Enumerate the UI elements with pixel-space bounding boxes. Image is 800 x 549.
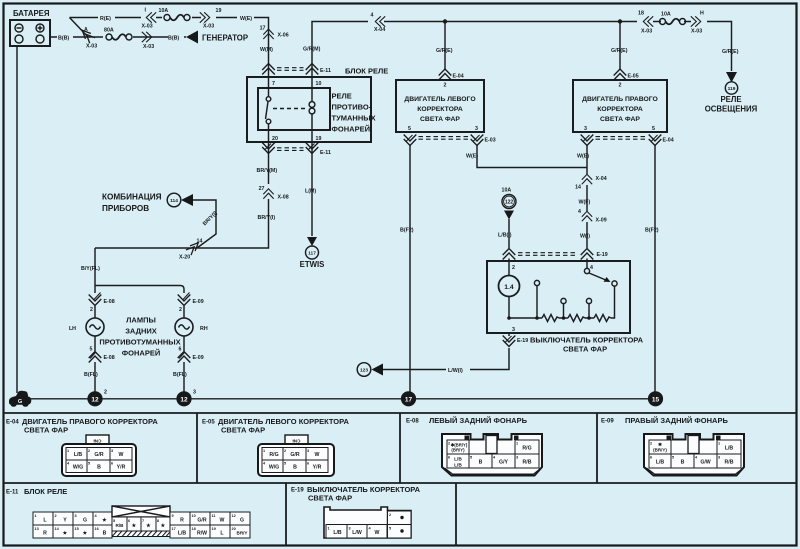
- svg-text:W: W: [375, 530, 380, 536]
- svg-text:B: B: [97, 465, 101, 471]
- svg-text:2: 2: [179, 307, 182, 313]
- svg-text:E-19: E-19: [291, 488, 304, 494]
- svg-text:BR/Y(M): BR/Y(M): [257, 168, 278, 174]
- svg-text:3: 3: [75, 514, 77, 518]
- svg-text:LH: LH: [69, 326, 76, 332]
- svg-text:B: B: [479, 460, 483, 466]
- svg-text:X-08: X-08: [278, 195, 289, 201]
- svg-text:ETWIS: ETWIS: [300, 260, 325, 269]
- svg-text:E-09: E-09: [193, 355, 204, 361]
- svg-text:ЛЕВЫЙ ЗАДНИЙ ФОНАРЬ: ЛЕВЫЙ ЗАДНИЙ ФОНАРЬ: [429, 416, 528, 425]
- svg-text:R/B: R/B: [116, 523, 125, 528]
- svg-text:L(M): L(M): [305, 189, 316, 195]
- svg-text:6: 6: [448, 456, 450, 460]
- svg-text:A: A: [84, 27, 88, 33]
- svg-text:1.4: 1.4: [504, 284, 514, 291]
- svg-text:КОРРЕКТОРА: КОРРЕКТОРА: [417, 106, 463, 113]
- svg-text:W(E): W(E): [466, 154, 478, 160]
- svg-text:3: 3: [193, 390, 196, 396]
- svg-text:15: 15: [652, 396, 660, 403]
- svg-text:БАТАРЕЯ: БАТАРЕЯ: [13, 9, 50, 18]
- svg-text:2: 2: [512, 265, 515, 271]
- svg-text:B: B: [293, 465, 297, 471]
- svg-text:6: 6: [307, 462, 309, 466]
- svg-text:G: G: [18, 399, 22, 405]
- svg-text:5: 5: [389, 527, 391, 531]
- svg-text:2: 2: [88, 449, 90, 453]
- svg-text:ПРОТИВО-: ПРОТИВО-: [332, 103, 372, 112]
- svg-text:L/B: L/B: [178, 531, 187, 537]
- svg-text:G: G: [83, 518, 87, 524]
- svg-text:★: ★: [132, 523, 137, 529]
- svg-text:20: 20: [272, 136, 278, 142]
- svg-text:X-03: X-03: [86, 44, 97, 50]
- svg-text:R/B: R/B: [523, 460, 532, 466]
- svg-text:КОМБИНАЦИЯ: КОМБИНАЦИЯ: [102, 193, 162, 202]
- svg-text:RH: RH: [200, 326, 208, 332]
- svg-text:ƗNƆ: ƗNƆ: [94, 439, 103, 444]
- svg-text:4: 4: [371, 13, 374, 19]
- svg-text:19: 19: [212, 527, 216, 531]
- svg-text:(BR/Y): (BR/Y): [451, 448, 465, 453]
- svg-text:15: 15: [75, 527, 79, 531]
- svg-text:СВЕТА ФАР: СВЕТА ФАР: [563, 345, 607, 354]
- svg-text:W(E): W(E): [240, 16, 252, 22]
- svg-text:12: 12: [91, 396, 99, 403]
- svg-text:L/W(I): L/W(I): [448, 368, 463, 374]
- svg-text:2: 2: [448, 442, 450, 446]
- svg-text:ПРИБОРОВ: ПРИБОРОВ: [102, 204, 149, 213]
- svg-text:5: 5: [90, 347, 93, 353]
- svg-text:Y/R: Y/R: [313, 465, 322, 471]
- svg-text:X-03: X-03: [691, 29, 702, 35]
- svg-text:E-19: E-19: [517, 338, 528, 344]
- svg-text:(BR/Y): (BR/Y): [653, 448, 667, 453]
- svg-text:B(F2): B(F2): [645, 228, 659, 234]
- svg-text:3: 3: [516, 456, 518, 460]
- svg-text:H: H: [700, 11, 704, 17]
- svg-text:BR/Y(I): BR/Y(I): [258, 215, 276, 221]
- svg-text:ФОНАРЕЙ: ФОНАРЕЙ: [122, 349, 160, 358]
- svg-text:G/R: G/R: [290, 452, 299, 458]
- svg-text:4: 4: [590, 265, 593, 271]
- svg-text:10: 10: [192, 514, 196, 518]
- svg-text:16: 16: [95, 527, 99, 531]
- svg-text:14: 14: [575, 185, 581, 191]
- svg-text:E-09: E-09: [193, 299, 204, 305]
- svg-text:G/R(E): G/R(E): [436, 48, 453, 54]
- svg-text:122: 122: [505, 200, 514, 206]
- svg-text:X-03: X-03: [143, 44, 154, 50]
- svg-text:3: 3: [307, 449, 309, 453]
- svg-text:ДВИГАТЕЛЬ ЛЕВОГО: ДВИГАТЕЛЬ ЛЕВОГО: [404, 96, 475, 103]
- svg-text:L/B: L/B: [656, 460, 665, 466]
- svg-text:ФОНАРЕЙ: ФОНАРЕЙ: [332, 125, 370, 134]
- svg-text:СВЕТА ФАР: СВЕТА ФАР: [221, 426, 265, 435]
- svg-text:5: 5: [88, 462, 90, 466]
- svg-text:2: 2: [284, 449, 286, 453]
- svg-text:3: 3: [584, 126, 587, 132]
- svg-text:18: 18: [638, 11, 644, 17]
- svg-text:1: 1: [718, 442, 720, 446]
- svg-text:G/W: G/W: [700, 460, 710, 466]
- svg-text:G/R(E): G/R(E): [611, 48, 628, 54]
- svg-text:B(B): B(B): [168, 36, 179, 42]
- svg-text:19: 19: [316, 136, 322, 142]
- svg-text:R/G: R/G: [269, 452, 278, 458]
- svg-text:114: 114: [170, 198, 178, 204]
- svg-text:1: 1: [35, 514, 37, 518]
- svg-text:ПРАВЫЙ ЗАДНИЙ ФОНАРЬ: ПРАВЫЙ ЗАДНИЙ ФОНАРЬ: [625, 416, 728, 425]
- svg-text:X-09: X-09: [596, 218, 607, 224]
- svg-text:17: 17: [172, 527, 176, 531]
- svg-text:ЗАДНИХ: ЗАДНИХ: [125, 327, 157, 336]
- svg-text:1: 1: [263, 449, 265, 453]
- svg-text:80A: 80A: [104, 28, 114, 34]
- svg-text:L/B: L/B: [74, 452, 83, 458]
- svg-text:X-04: X-04: [596, 176, 607, 182]
- svg-text:Y/R: Y/R: [117, 465, 126, 471]
- svg-text:BR/Y: BR/Y: [237, 531, 248, 536]
- svg-text:L/B: L/B: [454, 457, 462, 463]
- svg-text:B(F2): B(F2): [400, 228, 414, 234]
- svg-text:E-05: E-05: [202, 420, 215, 426]
- svg-text:L/B(I): L/B(I): [498, 233, 512, 239]
- svg-text:B(FL): B(FL): [84, 372, 98, 378]
- svg-text:9: 9: [172, 514, 174, 518]
- svg-text:E-04: E-04: [663, 138, 674, 144]
- svg-text:R: R: [43, 531, 47, 537]
- svg-text:W/G: W/G: [269, 465, 279, 471]
- svg-text:14: 14: [197, 239, 203, 245]
- svg-text:РЕЛЕ: РЕЛЕ: [720, 95, 741, 104]
- svg-text:ВЫКЛЮЧАТЕЛЬ КОРРЕКТОРА: ВЫКЛЮЧАТЕЛЬ КОРРЕКТОРА: [530, 336, 644, 345]
- svg-text:2: 2: [650, 442, 652, 446]
- svg-text:W(F): W(F): [579, 200, 591, 206]
- svg-text:3: 3: [475, 126, 478, 132]
- svg-text:4: 4: [578, 209, 581, 215]
- svg-text:20: 20: [232, 527, 236, 531]
- svg-text:G/R(E): G/R(E): [722, 49, 739, 55]
- svg-text:L/B: L/B: [454, 463, 462, 469]
- svg-text:ТУМАННЫХ: ТУМАННЫХ: [332, 114, 376, 123]
- svg-text:2: 2: [389, 513, 391, 517]
- svg-text:X-03: X-03: [142, 24, 153, 30]
- svg-text:L/B: L/B: [333, 530, 342, 536]
- svg-text:РЕЛЕ: РЕЛЕ: [332, 92, 352, 101]
- svg-text:X-06: X-06: [278, 33, 289, 39]
- svg-text:E-11: E-11: [320, 150, 331, 156]
- svg-text:W: W: [119, 452, 124, 458]
- svg-text:E-04: E-04: [453, 74, 464, 80]
- svg-text:W: W: [315, 452, 320, 458]
- svg-text:17: 17: [260, 26, 266, 32]
- svg-text:X-04: X-04: [374, 27, 385, 33]
- svg-text:ГЕНЕРАТОР: ГЕНЕРАТОР: [202, 34, 248, 43]
- svg-text:E-09: E-09: [601, 419, 614, 425]
- svg-text:1: 1: [328, 527, 330, 531]
- svg-text:R(E): R(E): [100, 16, 111, 22]
- svg-text:10A: 10A: [661, 12, 671, 18]
- svg-text:5: 5: [408, 126, 411, 132]
- svg-text:КОРРЕКТОРА: КОРРЕКТОРА: [597, 106, 643, 113]
- svg-text:СВЕТА ФАР: СВЕТА ФАР: [24, 426, 68, 435]
- svg-text:L/W: L/W: [352, 530, 362, 536]
- svg-text:5: 5: [470, 456, 472, 460]
- svg-text:G: G: [240, 518, 244, 524]
- svg-text:E-11: E-11: [320, 68, 331, 74]
- svg-text:17: 17: [405, 396, 413, 403]
- svg-text:10: 10: [316, 81, 322, 87]
- svg-text:5: 5: [672, 456, 674, 460]
- svg-text:B(FL): B(FL): [173, 372, 187, 378]
- svg-text:18: 18: [192, 527, 196, 531]
- svg-text:12: 12: [180, 396, 188, 403]
- svg-text:E-04: E-04: [6, 420, 19, 426]
- svg-text:7: 7: [142, 519, 144, 523]
- svg-text:X-03: X-03: [641, 29, 652, 35]
- svg-text:W(E): W(E): [577, 154, 589, 160]
- svg-text:ДВИГАТЕЛЬ ПРАВОГО: ДВИГАТЕЛЬ ПРАВОГО: [582, 96, 658, 103]
- svg-text:ОСВЕЩЕНИЯ: ОСВЕЩЕНИЯ: [705, 105, 758, 114]
- svg-text:6: 6: [650, 456, 652, 460]
- svg-text:ЛАМПЫ: ЛАМПЫ: [126, 316, 156, 325]
- svg-text:G/Y: G/Y: [499, 460, 508, 466]
- svg-text:13: 13: [35, 527, 39, 531]
- svg-text:2: 2: [619, 83, 622, 89]
- svg-text:L/B: L/B: [725, 446, 734, 452]
- svg-text:★: ★: [83, 531, 88, 537]
- svg-text:W(I): W(I): [580, 234, 590, 240]
- svg-text:G/R: G/R: [94, 452, 103, 458]
- svg-text:E-19: E-19: [597, 252, 608, 258]
- svg-text:3: 3: [349, 527, 351, 531]
- svg-text:117: 117: [308, 251, 316, 257]
- svg-text:2: 2: [444, 83, 447, 89]
- svg-text:E-08: E-08: [104, 355, 115, 361]
- svg-text:★: ★: [102, 518, 107, 524]
- svg-text:5: 5: [113, 519, 115, 523]
- svg-text:СВЕТА ФАР: СВЕТА ФАР: [600, 116, 640, 123]
- svg-text:G/R: G/R: [197, 518, 206, 524]
- svg-text:5: 5: [652, 126, 655, 132]
- svg-text:6: 6: [128, 519, 130, 523]
- svg-text:8: 8: [157, 519, 159, 523]
- svg-text:★: ★: [146, 523, 151, 529]
- svg-text:★: ★: [63, 531, 68, 537]
- svg-text:B: B: [681, 460, 685, 466]
- svg-text:X-03: X-03: [203, 24, 214, 30]
- svg-text:E-03: E-03: [485, 138, 496, 144]
- svg-text:123: 123: [360, 368, 368, 374]
- svg-text:R/G: R/G: [522, 446, 531, 452]
- svg-text:Y: Y: [63, 518, 67, 524]
- svg-text:27: 27: [259, 186, 265, 192]
- svg-text:3: 3: [718, 456, 720, 460]
- svg-text:2: 2: [104, 390, 107, 396]
- svg-text:ПРОТИВОТУМАННЫХ: ПРОТИВОТУМАННЫХ: [99, 338, 180, 347]
- svg-text:6: 6: [111, 462, 113, 466]
- svg-text:10A: 10A: [502, 188, 512, 194]
- svg-text:БЛОК РЕЛЕ: БЛОК РЕЛЕ: [24, 487, 67, 496]
- svg-text:7: 7: [272, 81, 275, 87]
- svg-text:10A: 10A: [159, 8, 169, 14]
- svg-text:★: ★: [161, 523, 166, 529]
- svg-text:E-08: E-08: [104, 299, 115, 305]
- svg-text:E-11: E-11: [6, 490, 19, 496]
- svg-text:W: W: [220, 518, 225, 524]
- svg-text:R/B: R/B: [725, 460, 734, 466]
- svg-text:E-05: E-05: [628, 74, 639, 80]
- svg-text:X-20: X-20: [179, 255, 190, 261]
- svg-text:1: 1: [516, 442, 518, 446]
- svg-text:2: 2: [55, 514, 57, 518]
- svg-text:СВЕТА ФАР: СВЕТА ФАР: [420, 116, 460, 123]
- svg-text:B: B: [103, 531, 107, 537]
- svg-text:2: 2: [90, 307, 93, 313]
- svg-text:6: 6: [179, 347, 182, 353]
- svg-text:ƗNƆ: ƗNƆ: [293, 439, 302, 444]
- svg-text:12: 12: [232, 514, 236, 518]
- svg-text:11: 11: [212, 514, 216, 518]
- svg-text:R: R: [180, 518, 184, 524]
- svg-text:19: 19: [216, 8, 222, 14]
- svg-text:СВЕТА ФАР: СВЕТА ФАР: [308, 494, 352, 503]
- svg-text:5: 5: [284, 462, 286, 466]
- svg-text:B(B): B(B): [58, 36, 69, 42]
- svg-text:3: 3: [512, 327, 515, 333]
- svg-text:119: 119: [728, 86, 736, 92]
- svg-text:B/Y(FL): B/Y(FL): [81, 266, 100, 272]
- svg-text:W(M): W(M): [260, 47, 273, 53]
- svg-text:3: 3: [111, 449, 113, 453]
- svg-text:1: 1: [67, 449, 69, 453]
- svg-text:БЛОК РЕЛЕ: БЛОК РЕЛЕ: [345, 67, 388, 76]
- svg-text:W/G: W/G: [73, 465, 83, 471]
- svg-text:R/W: R/W: [197, 531, 207, 537]
- svg-text:E-08: E-08: [406, 419, 419, 425]
